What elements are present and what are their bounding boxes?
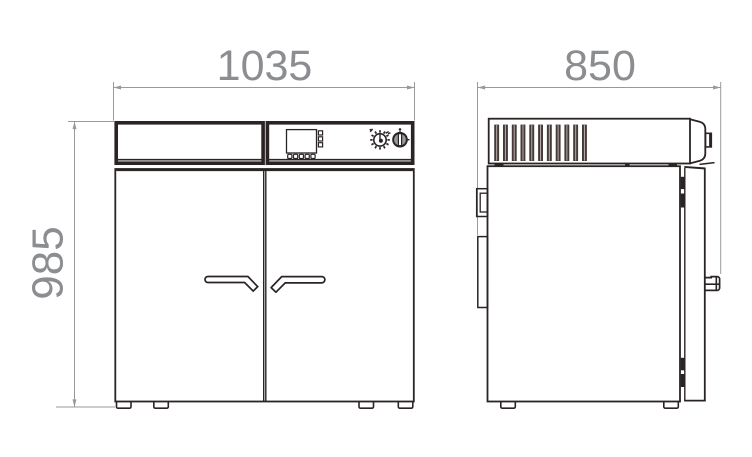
svg-text:850: 850	[564, 42, 636, 90]
svg-text:1035: 1035	[217, 42, 313, 90]
svg-text:985: 985	[24, 226, 73, 299]
